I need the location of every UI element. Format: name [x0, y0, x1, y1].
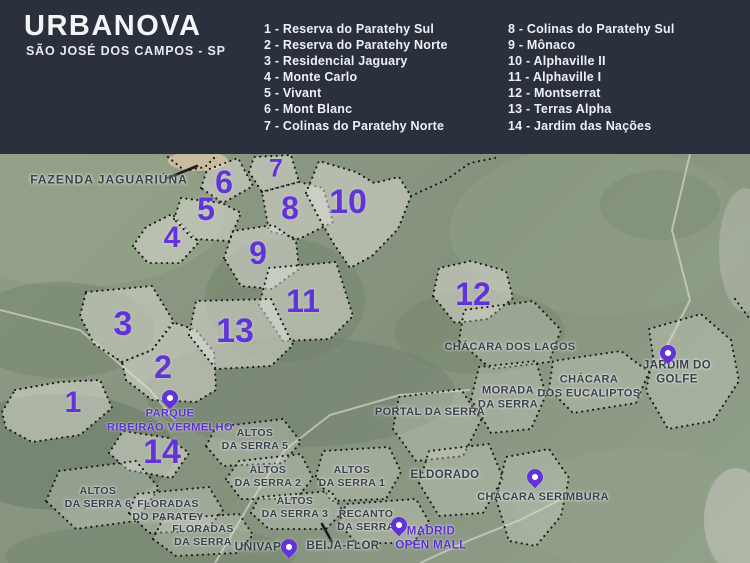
legend-item-4: 4 - Monte Carlo — [264, 69, 448, 85]
label-altos-da-serra-3: ALTOS DA SERRA 3 — [262, 495, 329, 521]
label-portal-da-serra: PORTAL DA SERRA — [375, 406, 485, 420]
page-title: URBANOVA — [24, 10, 201, 43]
district-number-6: 6 — [215, 166, 233, 198]
label-altos-da-serra-1: ALTOS DA SERRA 1 — [319, 464, 386, 490]
legend-item-1: 1 - Reserva do Paratehy Sul — [264, 21, 448, 37]
district-number-4: 4 — [164, 223, 181, 253]
label-chacara-serimbura: CHÁCARA SERIMBURA — [477, 491, 609, 505]
district-number-14: 14 — [143, 435, 181, 469]
legend-item-14: 14 - Jardim das Nações — [508, 118, 675, 134]
page-subtitle: SÃO JOSÉ DOS CAMPOS - SP — [26, 44, 226, 58]
label-morada-da-serra: MORADA DA SERRA — [478, 384, 538, 412]
district-number-7: 7 — [269, 157, 283, 182]
label-univap: UNIVAP — [235, 540, 282, 555]
district-number-2: 2 — [154, 351, 172, 383]
label-eldorado: ELDORADO — [410, 468, 479, 482]
district-number-3: 3 — [114, 307, 133, 341]
district-number-10: 10 — [329, 185, 367, 219]
legend-item-5: 5 - Vivant — [264, 85, 448, 101]
legend-item-11: 11 - Alphaville I — [508, 69, 675, 85]
legend-item-6: 6 - Mont Blanc — [264, 101, 448, 117]
district-number-13: 13 — [216, 314, 254, 348]
legend-column-2: 8 - Colinas do Paratehy Sul 9 - Mônaco 1… — [508, 21, 675, 134]
legend-item-7: 7 - Colinas do Paratehy Norte — [264, 118, 448, 134]
label-jardim-do-golfe: JARDIM DO GOLFE — [641, 359, 714, 388]
legend-item-13: 13 - Terras Alpha — [508, 101, 675, 117]
legend-item-12: 12 - Montserrat — [508, 85, 675, 101]
label-recanto-da-serra: RECANTO DA SERRA — [337, 508, 395, 534]
district-number-9: 9 — [249, 237, 267, 269]
label-fazenda-jaguariuna: FAZENDA JAGUARIÚNA — [30, 173, 188, 188]
label-altos-da-serra-2: ALTOS DA SERRA 2 — [235, 464, 302, 490]
label-parque-ribeirao-vermelho: PARQUE RIBEIRÃO VERMELHO — [107, 407, 233, 435]
district-number-8: 8 — [281, 192, 299, 224]
label-beija-flor: BEIJA-FLOR — [307, 539, 380, 553]
urbanova-map-infographic: 1 2 3 4 5 6 7 8 9 10 11 12 13 14 FAZENDA… — [0, 0, 750, 563]
legend-item-9: 9 - Mônaco — [508, 37, 675, 53]
label-altos-da-serra-6: ALTOS DA SERRA 6 — [65, 485, 132, 511]
district-number-11: 11 — [286, 285, 320, 317]
district-number-1: 1 — [65, 388, 82, 418]
legend-item-3: 3 - Residencial Jaguary — [264, 53, 448, 69]
district-number-5: 5 — [197, 193, 215, 225]
header-bar: URBANOVA SÃO JOSÉ DOS CAMPOS - SP 1 - Re… — [0, 0, 750, 154]
label-floradas-do-paratey: FLORADAS DO PARATEY — [132, 498, 203, 524]
label-chacara-dos-lagos: CHÁCARA DOS LAGOS — [444, 341, 575, 355]
legend-item-8: 8 - Colinas do Paratehy Sul — [508, 21, 675, 37]
legend-column-1: 1 - Reserva do Paratehy Sul 2 - Reserva … — [264, 21, 448, 134]
legend-item-2: 2 - Reserva do Paratehy Norte — [264, 37, 448, 53]
legend-item-10: 10 - Alphaville II — [508, 53, 675, 69]
label-chacara-dos-eucaliptos: CHÁCARA DOS EUCALIPTOS — [537, 373, 640, 401]
label-floradas-da-serra: FLORADAS DA SERRA — [172, 523, 234, 549]
district-number-12: 12 — [455, 278, 491, 310]
